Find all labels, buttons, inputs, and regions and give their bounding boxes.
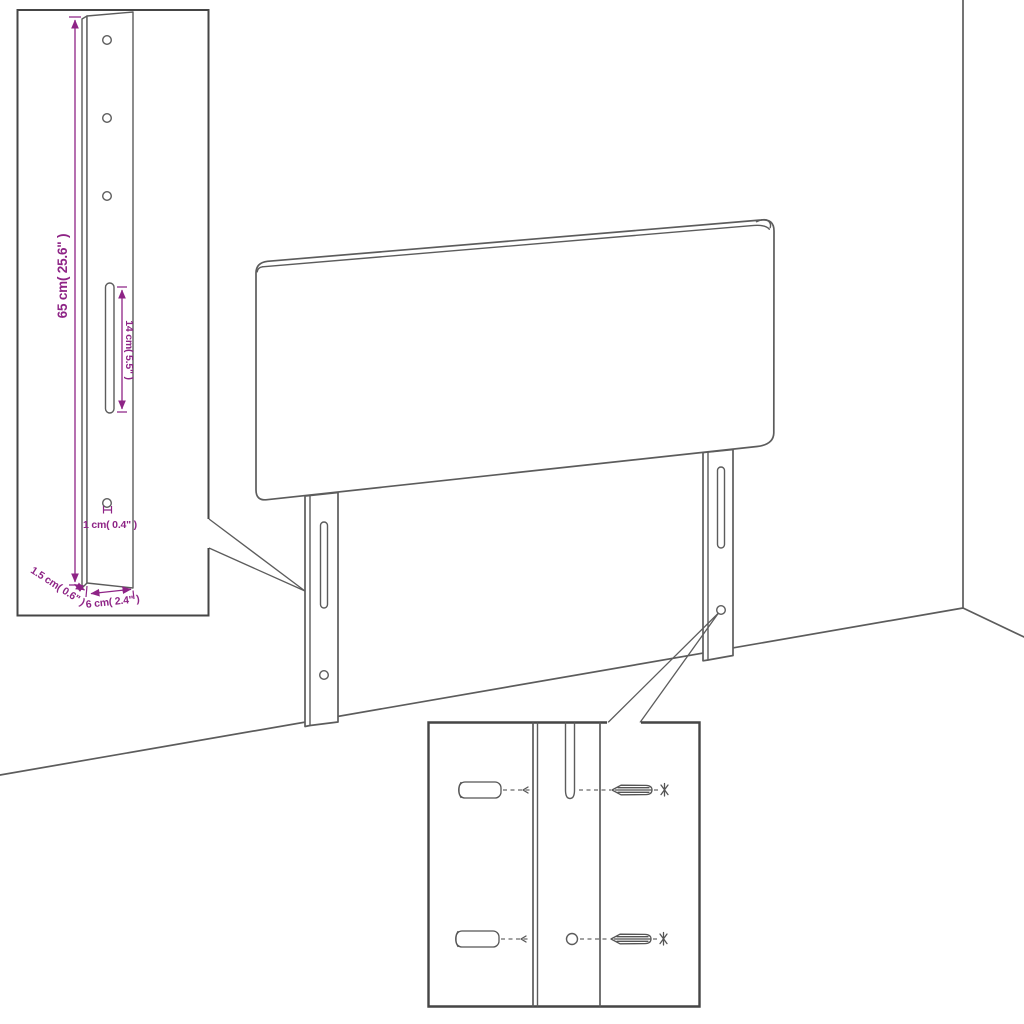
callout-wedge-right xyxy=(608,613,719,723)
bracket-slot xyxy=(106,283,115,413)
dimension-height: 65 cm( 25.6" ) xyxy=(55,17,81,585)
inset-border xyxy=(429,723,700,1007)
callout-wedge-left xyxy=(209,519,305,591)
bracket-hole xyxy=(103,192,112,201)
dimension-width: 6 cm( 2.4" ) xyxy=(85,586,140,611)
bracket-side-face xyxy=(82,16,87,588)
diagram-page: 65 cm( 25.6" ) 14 cm( 5.5" ) 1 cm( 0.4" … xyxy=(0,0,1024,1024)
headboard-panel xyxy=(256,220,774,500)
callout-line xyxy=(640,613,719,723)
bracket-hole xyxy=(103,36,112,45)
strip-hole xyxy=(567,934,578,945)
dimension-line xyxy=(91,589,131,593)
callout-line xyxy=(608,613,719,723)
headboard-leg-left xyxy=(305,493,338,727)
mounting-detail-inset xyxy=(429,723,700,1007)
leg-slot xyxy=(718,467,725,548)
dim-width-label: 6 cm( 2.4" ) xyxy=(85,593,140,611)
leg-slot xyxy=(321,522,328,608)
panel-outline xyxy=(256,220,774,500)
floor-line-right-wall xyxy=(963,608,1024,637)
bracket-hole xyxy=(103,114,112,123)
dimension-thickness: 1.5 cm( 0.6" ) xyxy=(28,564,87,608)
dim-height-label: 65 cm( 25.6" ) xyxy=(55,234,70,319)
dim-slot-label: 14 cm( 5.5" ) xyxy=(123,320,135,380)
dim-hole-label: 1 cm( 0.4" ) xyxy=(83,519,137,531)
headboard-assembly-diagram: 65 cm( 25.6" ) 14 cm( 5.5" ) 1 cm( 0.4" … xyxy=(0,0,1024,1024)
bracket-detail-inset: 65 cm( 25.6" ) 14 cm( 5.5" ) 1 cm( 0.4" … xyxy=(18,10,209,616)
leg-hole xyxy=(320,671,329,680)
